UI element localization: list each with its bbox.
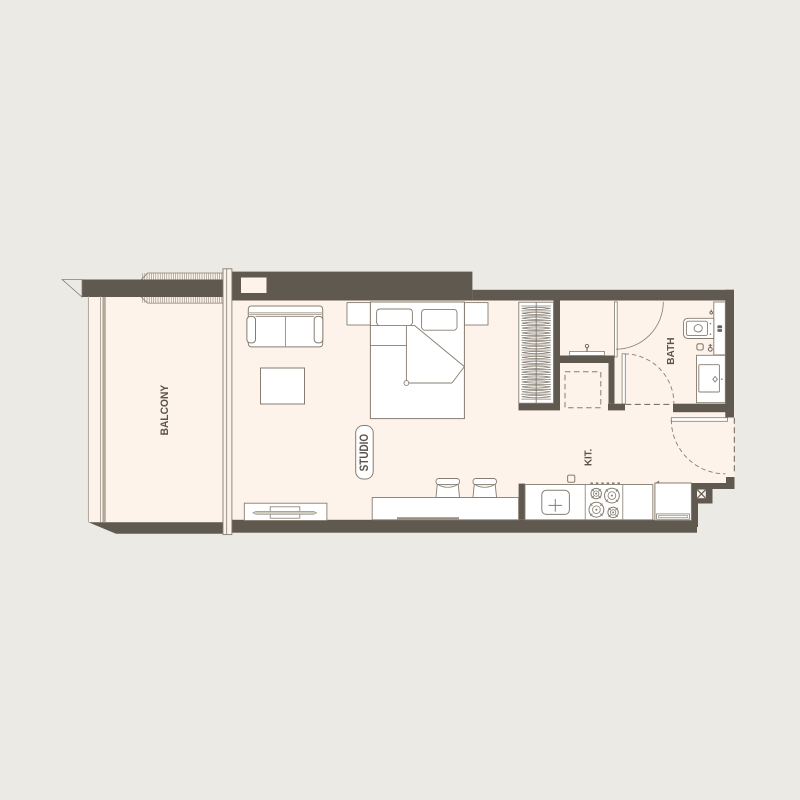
svg-text:KIT.: KIT.	[584, 449, 595, 466]
svg-text:BATH: BATH	[666, 337, 677, 364]
svg-text:STUDIO: STUDIO	[357, 434, 371, 472]
svg-text:BALCONY: BALCONY	[159, 384, 171, 435]
